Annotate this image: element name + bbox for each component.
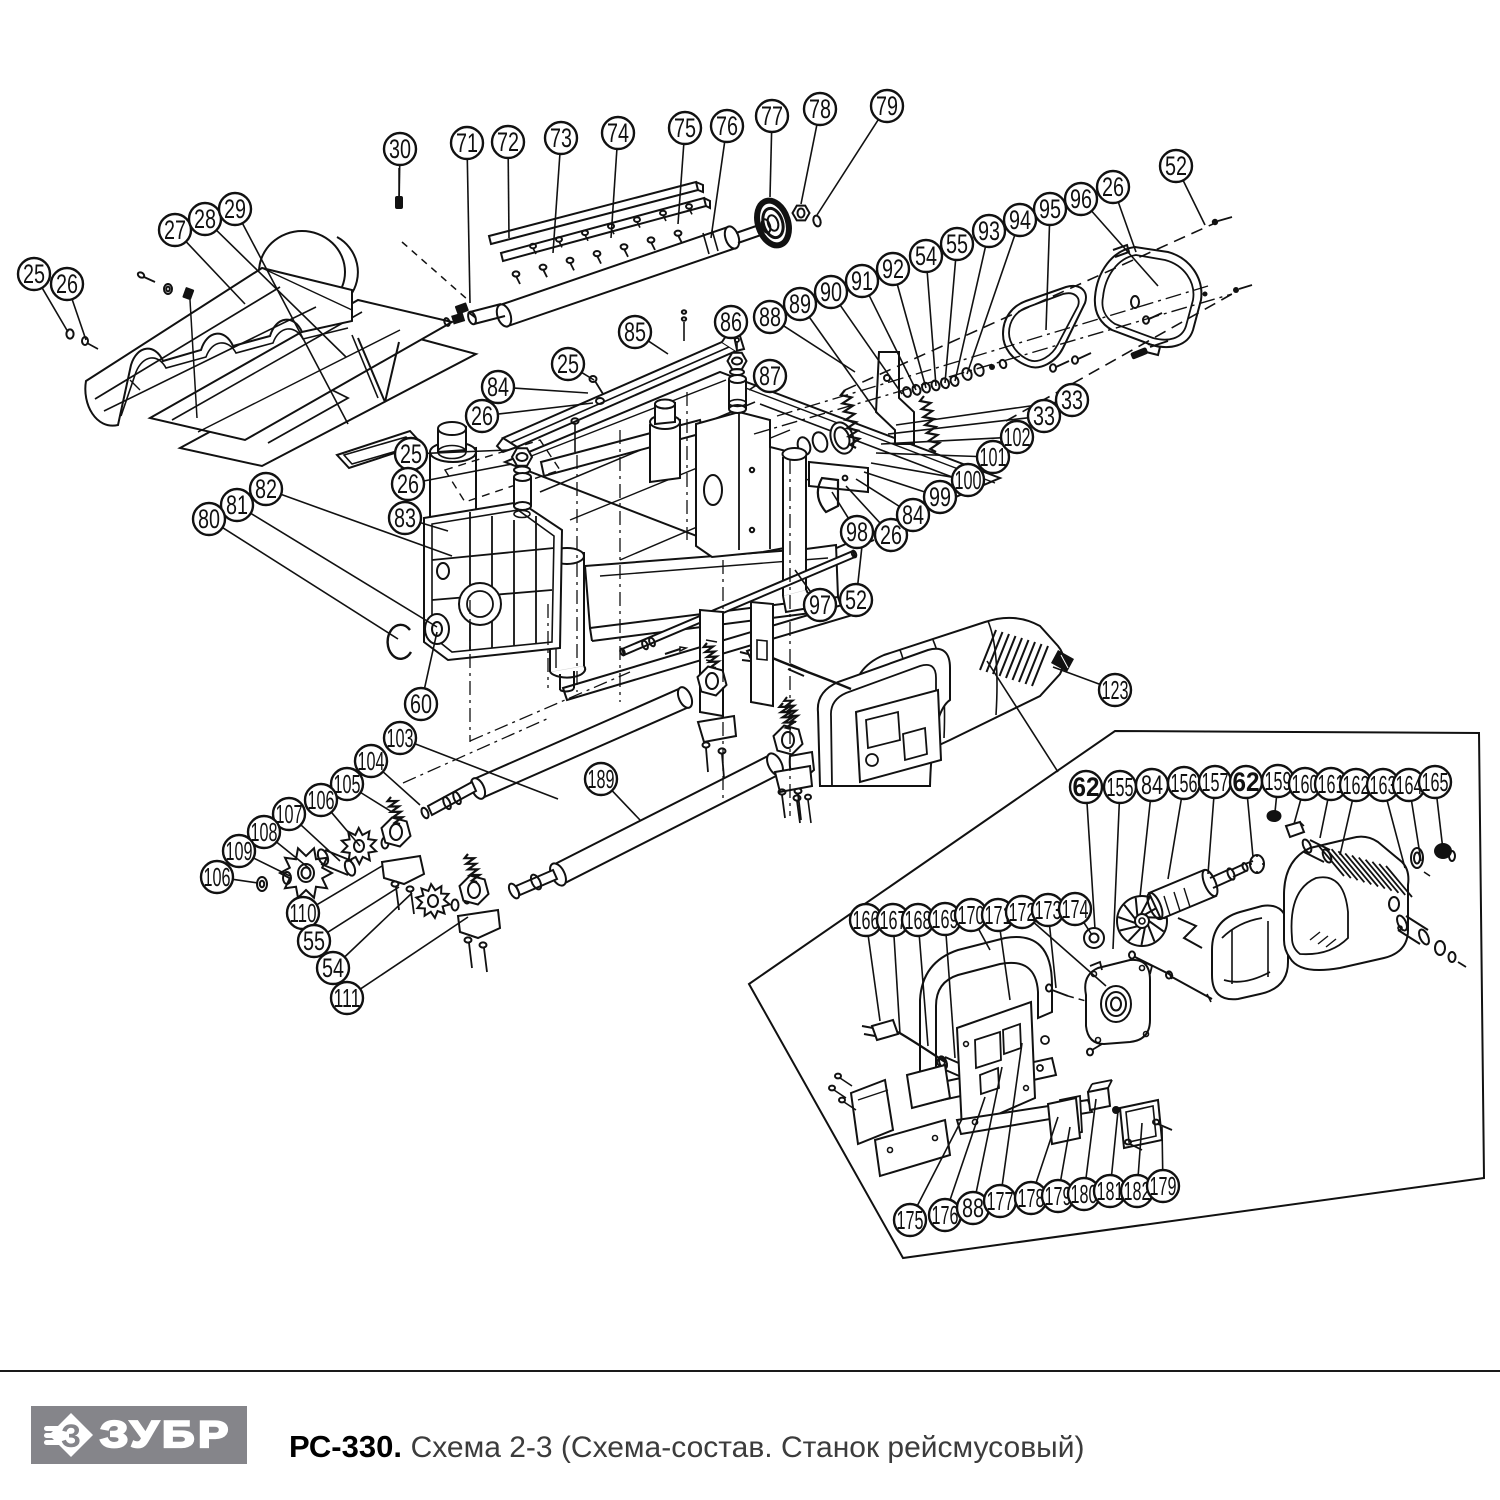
svg-text:82: 82 [255, 474, 277, 504]
svg-text:25: 25 [400, 439, 422, 469]
svg-text:101: 101 [980, 442, 1007, 472]
svg-text:54: 54 [322, 953, 344, 983]
svg-text:178: 178 [1018, 1183, 1045, 1213]
svg-text:РС-330. Схема 2-3 (Схема-соста: РС-330. Схема 2-3 (Схема-состав. Станок … [289, 1429, 1084, 1464]
svg-text:105: 105 [334, 769, 361, 799]
svg-text:174: 174 [1062, 894, 1089, 924]
svg-text:159: 159 [1265, 766, 1292, 796]
svg-text:95: 95 [1039, 194, 1061, 224]
svg-text:155: 155 [1107, 772, 1134, 802]
svg-text:55: 55 [946, 229, 968, 259]
svg-text:З: З [61, 1418, 81, 1454]
svg-text:75: 75 [674, 113, 696, 143]
svg-text:25: 25 [23, 259, 45, 289]
svg-text:92: 92 [882, 254, 904, 284]
svg-text:170: 170 [958, 900, 985, 930]
svg-text:84: 84 [1141, 770, 1163, 800]
svg-text:110: 110 [290, 898, 317, 928]
svg-text:107: 107 [276, 799, 303, 829]
svg-text:55: 55 [303, 926, 325, 956]
svg-text:175: 175 [897, 1205, 924, 1235]
svg-text:173: 173 [1035, 895, 1062, 925]
svg-text:96: 96 [1070, 184, 1092, 214]
svg-text:157: 157 [1202, 767, 1229, 797]
svg-text:77: 77 [761, 101, 783, 131]
svg-text:176: 176 [932, 1200, 959, 1230]
svg-text:181: 181 [1097, 1176, 1124, 1206]
svg-text:86: 86 [720, 307, 742, 337]
svg-text:106: 106 [308, 785, 335, 815]
svg-text:54: 54 [915, 241, 937, 271]
svg-text:81: 81 [226, 490, 248, 520]
svg-text:83: 83 [394, 503, 416, 533]
svg-text:111: 111 [334, 983, 361, 1013]
svg-text:123: 123 [1102, 675, 1129, 705]
svg-text:99: 99 [929, 482, 951, 512]
svg-text:89: 89 [789, 289, 811, 319]
svg-text:26: 26 [471, 401, 493, 431]
svg-text:27: 27 [164, 215, 186, 245]
svg-text:72: 72 [497, 127, 519, 157]
svg-text:73: 73 [550, 123, 572, 153]
svg-text:103: 103 [387, 723, 414, 753]
svg-text:60: 60 [410, 689, 432, 719]
svg-text:106: 106 [204, 862, 231, 892]
svg-text:87: 87 [759, 361, 781, 391]
svg-text:88: 88 [759, 302, 781, 332]
svg-text:102: 102 [1004, 422, 1031, 452]
svg-text:93: 93 [978, 216, 1000, 246]
svg-text:71: 71 [456, 128, 478, 158]
svg-text:ЗУБР: ЗУБР [100, 1414, 232, 1455]
svg-text:78: 78 [809, 94, 831, 124]
svg-text:166: 166 [853, 905, 880, 935]
svg-text:88: 88 [962, 1193, 984, 1223]
svg-text:76: 76 [716, 111, 738, 141]
svg-text:98: 98 [846, 517, 868, 547]
svg-text:90: 90 [820, 277, 842, 307]
svg-text:104: 104 [358, 746, 385, 776]
svg-text:33: 33 [1033, 401, 1055, 431]
svg-text:189: 189 [588, 764, 615, 794]
svg-text:29: 29 [224, 194, 246, 224]
svg-text:52: 52 [1165, 151, 1187, 181]
svg-text:100: 100 [955, 465, 982, 495]
svg-text:26: 26 [1102, 172, 1124, 202]
svg-text:62: 62 [1073, 772, 1100, 802]
svg-text:25: 25 [557, 349, 579, 379]
svg-text:26: 26 [397, 469, 419, 499]
svg-text:179: 179 [1150, 1171, 1177, 1201]
svg-text:182: 182 [1124, 1176, 1151, 1206]
svg-text:33: 33 [1061, 385, 1083, 415]
svg-text:91: 91 [851, 266, 873, 296]
svg-text:80: 80 [198, 504, 220, 534]
svg-text:156: 156 [1171, 768, 1198, 798]
svg-text:84: 84 [902, 500, 924, 530]
svg-text:85: 85 [624, 317, 646, 347]
svg-text:177: 177 [987, 1186, 1014, 1216]
svg-text:168: 168 [905, 905, 932, 935]
svg-text:94: 94 [1009, 205, 1031, 235]
svg-text:74: 74 [607, 118, 629, 148]
svg-text:108: 108 [251, 817, 278, 847]
svg-text:165: 165 [1422, 767, 1449, 797]
svg-text:84: 84 [487, 372, 509, 402]
svg-text:97: 97 [809, 590, 831, 620]
svg-text:79: 79 [876, 91, 898, 121]
svg-text:162: 162 [1343, 770, 1370, 800]
svg-text:28: 28 [194, 204, 216, 234]
svg-text:26: 26 [56, 269, 78, 299]
svg-text:52: 52 [845, 585, 867, 615]
svg-text:62: 62 [1233, 767, 1260, 797]
svg-text:30: 30 [389, 134, 411, 164]
